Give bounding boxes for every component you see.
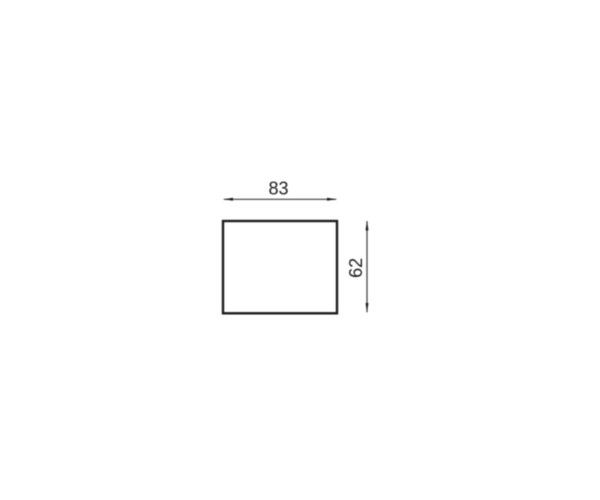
svg-text:83: 83 (268, 179, 288, 199)
svg-text:62: 62 (346, 258, 366, 278)
